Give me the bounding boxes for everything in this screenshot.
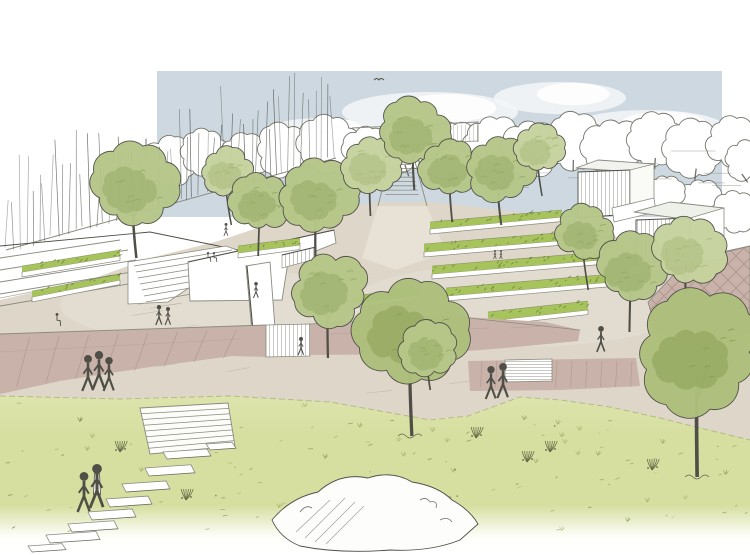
stair-gate-slats xyxy=(266,324,310,357)
sketch-canvas xyxy=(0,0,750,555)
wall-stair-treads xyxy=(505,359,552,382)
reed xyxy=(5,200,8,248)
reed xyxy=(27,156,28,244)
reed xyxy=(11,202,13,249)
cloud xyxy=(537,83,610,105)
reed xyxy=(40,175,41,242)
reed xyxy=(42,183,45,241)
planting-strip xyxy=(22,249,122,277)
grass-dot xyxy=(445,461,447,463)
grass-dot xyxy=(534,424,536,426)
grass-dot xyxy=(666,515,668,517)
landscape-sketch xyxy=(0,0,750,555)
grass-mark xyxy=(61,455,64,456)
grass-mark xyxy=(223,515,228,516)
grass-dot xyxy=(130,444,132,446)
grass-mark xyxy=(125,507,129,508)
grass-dot xyxy=(454,469,456,471)
grass-dot xyxy=(607,429,609,431)
grass-dot xyxy=(22,450,24,452)
reed xyxy=(55,140,59,237)
grass-dot xyxy=(717,446,719,448)
grass-dot xyxy=(234,466,236,468)
reed xyxy=(19,155,20,249)
grass-dot xyxy=(215,495,217,497)
grass-dot xyxy=(369,471,371,473)
grass-dot xyxy=(556,477,558,479)
grass-dot xyxy=(554,425,556,427)
reed xyxy=(50,154,53,235)
mauve-wall-right xyxy=(468,358,640,391)
building-facade-hatch xyxy=(452,125,478,141)
reed xyxy=(69,163,71,234)
grass-dot xyxy=(609,484,611,486)
stepping-stone xyxy=(206,442,236,450)
grass-mark xyxy=(240,427,243,428)
grass-dot xyxy=(456,495,458,497)
person-figure xyxy=(224,223,228,236)
reed xyxy=(80,174,82,226)
